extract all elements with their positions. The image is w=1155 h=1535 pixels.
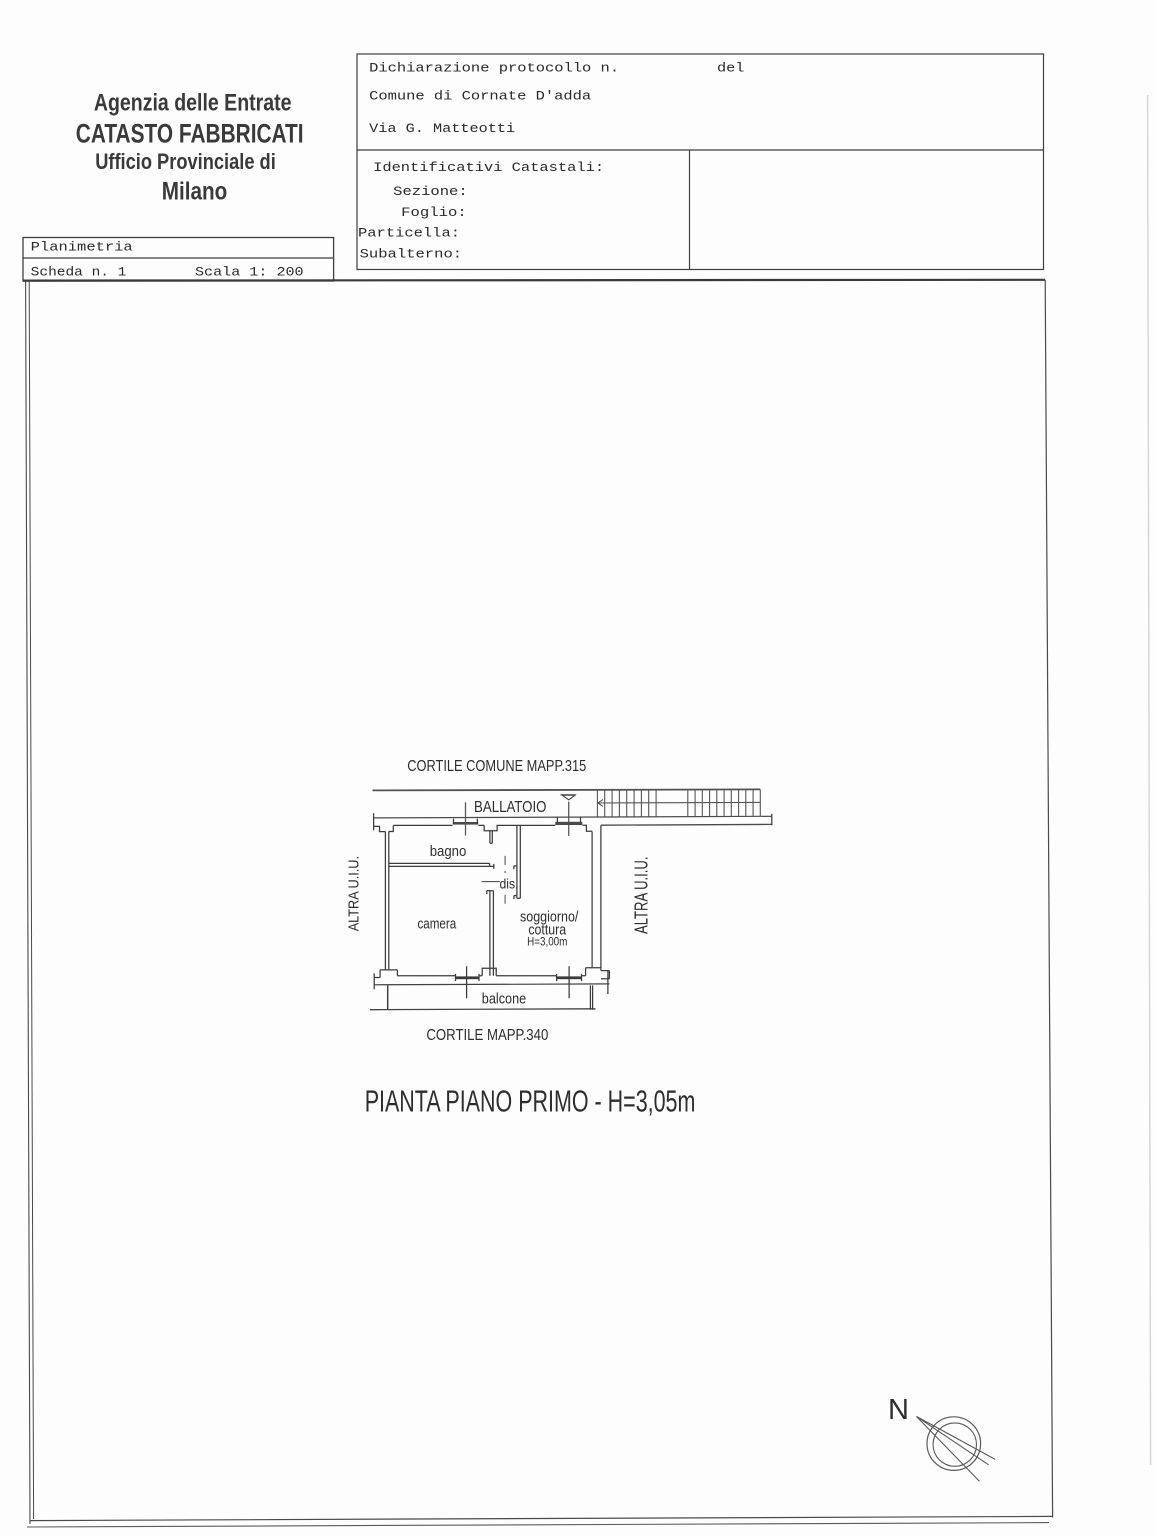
svg-text:Dichiarazione protocollo n.: Dichiarazione protocollo n.	[369, 61, 619, 76]
svg-text:CATASTO FABBRICATI: CATASTO FABBRICATI	[76, 119, 304, 149]
svg-text:N: N	[888, 1394, 909, 1426]
svg-text:Scheda n. 1: Scheda n. 1	[31, 264, 127, 279]
svg-text:Agenzia delle Entrate: Agenzia delle Entrate	[94, 90, 292, 117]
svg-text:CORTILE COMUNE MAPP.315: CORTILE COMUNE MAPP.315	[407, 758, 586, 775]
svg-text:CORTILE MAPP.340: CORTILE MAPP.340	[426, 1027, 548, 1044]
svg-text:ALTRA U.I.U.: ALTRA U.I.U.	[347, 856, 363, 931]
svg-text:BALLATOIO: BALLATOIO	[474, 799, 547, 816]
svg-text:Identificativi Catastali:: Identificativi Catastali:	[373, 160, 604, 175]
svg-text:Foglio:: Foglio:	[401, 205, 467, 220]
svg-text:Ufficio Provinciale di: Ufficio Provinciale di	[95, 149, 276, 174]
svg-text:balcone: balcone	[482, 990, 526, 1007]
svg-text:dis.: dis.	[500, 876, 519, 892]
svg-text:Planimetria: Planimetria	[31, 240, 133, 255]
svg-text:Comune di Cornate D'adda: Comune di Cornate D'adda	[369, 89, 591, 104]
svg-text:Milano: Milano	[162, 178, 228, 206]
svg-text:bagno: bagno	[430, 843, 467, 860]
svg-text:PIANTA PIANO PRIMO - H=3,05m: PIANTA PIANO PRIMO - H=3,05m	[365, 1084, 696, 1118]
svg-text:del: del	[717, 61, 744, 76]
svg-text:Via G. Matteotti: Via G. Matteotti	[369, 121, 515, 136]
svg-text:Subalterno:: Subalterno:	[360, 246, 463, 261]
svg-text:Particella:: Particella:	[358, 226, 460, 241]
svg-text:camera: camera	[418, 916, 457, 933]
svg-text:Scala 1: 200: Scala 1: 200	[195, 264, 304, 279]
svg-text:Sezione:: Sezione:	[393, 184, 468, 199]
svg-text:ALTRA U.I.U.: ALTRA U.I.U.	[632, 857, 652, 935]
svg-text:H=3,00m: H=3,00m	[527, 936, 567, 949]
